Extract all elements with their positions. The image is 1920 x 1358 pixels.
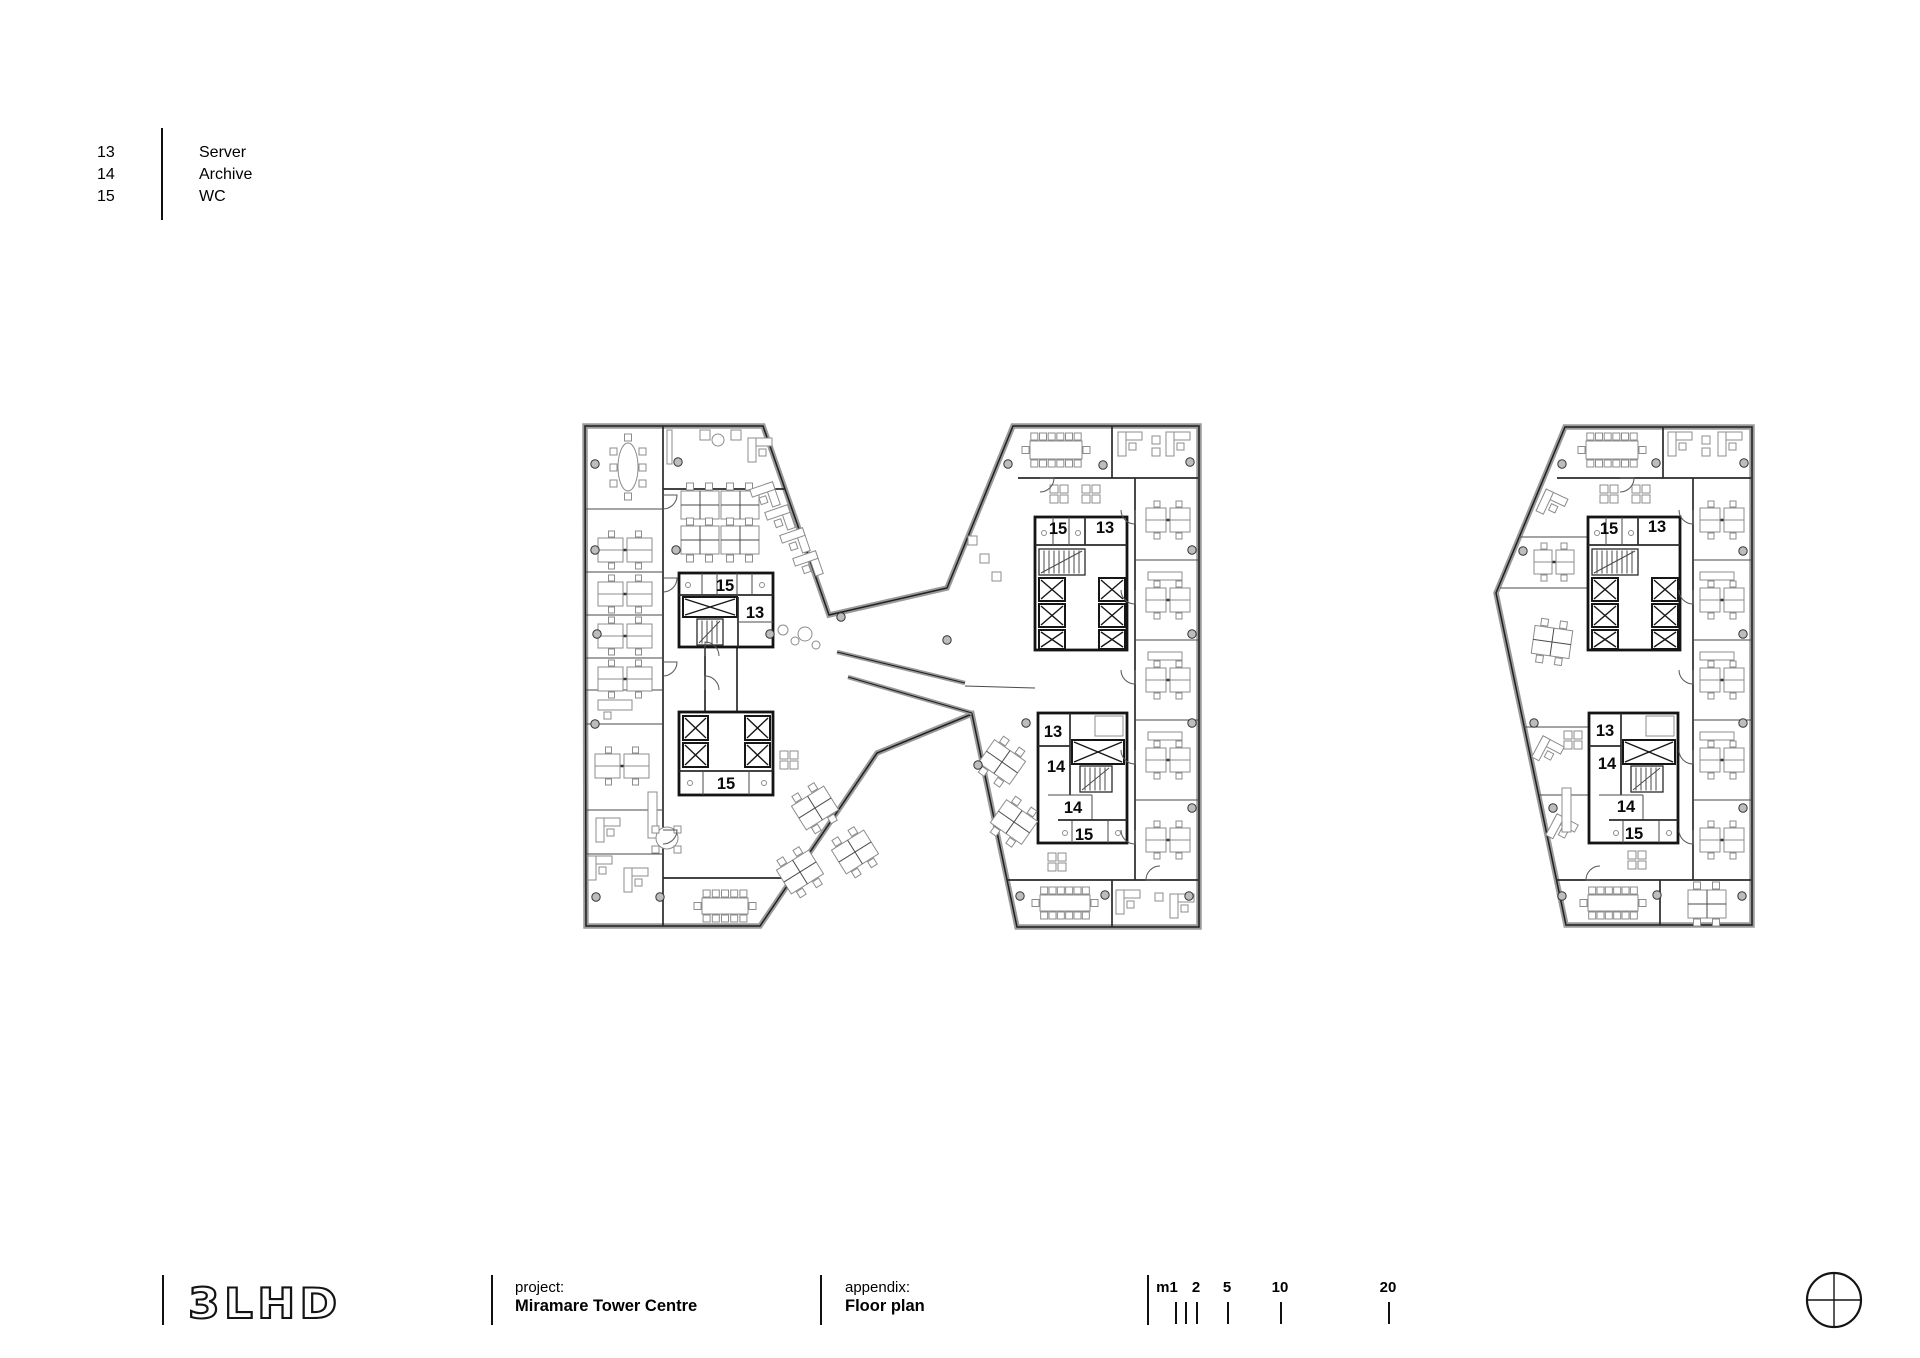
printer-box bbox=[790, 751, 798, 759]
staircase bbox=[1039, 549, 1085, 575]
elevator-shaft bbox=[1039, 630, 1065, 649]
company-logo: 3LHD bbox=[186, 1282, 376, 1328]
chair bbox=[1622, 433, 1629, 440]
service-room bbox=[1646, 716, 1674, 736]
chair bbox=[635, 879, 642, 886]
chair bbox=[609, 531, 615, 537]
printer-box bbox=[1048, 863, 1056, 871]
printer-box bbox=[1082, 495, 1090, 503]
furniture-rect bbox=[731, 430, 741, 440]
printer-box bbox=[1628, 861, 1636, 869]
room-label: 13 bbox=[1044, 723, 1062, 741]
chair bbox=[706, 555, 713, 562]
furniture-rect bbox=[1170, 748, 1190, 760]
printer-box bbox=[1632, 485, 1640, 493]
chair bbox=[1630, 912, 1637, 919]
chair bbox=[1560, 621, 1568, 629]
project-value: Miramare Tower Centre bbox=[515, 1297, 697, 1316]
chair bbox=[1074, 912, 1081, 919]
furniture-rect bbox=[1146, 748, 1166, 760]
titleblock-divider-2 bbox=[491, 1275, 493, 1325]
furniture-rect bbox=[1700, 680, 1720, 692]
column bbox=[766, 630, 774, 638]
furniture-rect bbox=[1724, 520, 1744, 532]
chair bbox=[1049, 887, 1056, 894]
furniture-rect bbox=[1170, 508, 1190, 520]
printer-box bbox=[1638, 861, 1646, 869]
furniture-rect bbox=[1702, 448, 1710, 456]
chair bbox=[633, 779, 639, 785]
chair bbox=[1031, 433, 1038, 440]
furniture-rect bbox=[1700, 588, 1720, 600]
chair bbox=[609, 692, 615, 698]
chair bbox=[1630, 433, 1637, 440]
chair bbox=[1614, 912, 1621, 919]
chair bbox=[1605, 912, 1612, 919]
chair bbox=[1176, 821, 1182, 827]
furniture-rect bbox=[1170, 600, 1190, 612]
printer-box bbox=[1082, 485, 1090, 493]
chair bbox=[740, 915, 747, 922]
chair bbox=[1176, 853, 1182, 859]
chair bbox=[1589, 912, 1596, 919]
furniture-rect bbox=[598, 636, 623, 648]
chair bbox=[636, 575, 642, 581]
chair bbox=[1622, 887, 1629, 894]
chair bbox=[1176, 533, 1182, 539]
elevator-shaft bbox=[1072, 740, 1124, 764]
chair bbox=[1057, 912, 1064, 919]
chair bbox=[607, 829, 614, 836]
furniture-rect bbox=[1724, 588, 1744, 600]
chair bbox=[1708, 581, 1714, 587]
furniture-rect bbox=[1700, 652, 1734, 660]
chair bbox=[652, 846, 659, 853]
column bbox=[591, 546, 599, 554]
chair bbox=[1587, 433, 1594, 440]
desk-cluster bbox=[827, 823, 883, 880]
chair bbox=[1176, 773, 1182, 779]
chair bbox=[1057, 433, 1064, 440]
furniture-rect bbox=[1700, 732, 1734, 740]
furniture-rect bbox=[627, 582, 652, 594]
chair bbox=[1154, 613, 1160, 619]
column bbox=[591, 720, 599, 728]
chair bbox=[1713, 919, 1720, 926]
chair bbox=[774, 519, 783, 528]
chair bbox=[1176, 661, 1182, 667]
elevator-shaft bbox=[1623, 740, 1675, 764]
chair bbox=[1708, 853, 1714, 859]
chair bbox=[1730, 661, 1736, 667]
scale-tick bbox=[1196, 1302, 1198, 1324]
chair bbox=[610, 464, 617, 471]
wc-fixture bbox=[1614, 831, 1619, 836]
furniture-rect bbox=[1148, 652, 1182, 660]
chair bbox=[599, 867, 606, 874]
chair bbox=[1730, 773, 1736, 779]
elevator-shaft bbox=[1592, 604, 1618, 627]
lounge-table bbox=[712, 434, 724, 446]
chair bbox=[1713, 882, 1720, 889]
furniture-rect bbox=[1724, 680, 1744, 692]
furniture-rect bbox=[1148, 572, 1182, 580]
room-label: 15 bbox=[716, 577, 734, 595]
staircase bbox=[697, 619, 723, 645]
furniture-rect bbox=[588, 856, 596, 880]
furniture-rect bbox=[748, 438, 756, 462]
column bbox=[672, 546, 680, 554]
furniture-rect bbox=[595, 754, 620, 766]
furniture-rect bbox=[1118, 432, 1126, 456]
column bbox=[1188, 546, 1196, 554]
wc-fixture bbox=[1042, 531, 1047, 536]
chair bbox=[1057, 460, 1064, 467]
scale-tick bbox=[1280, 1302, 1282, 1324]
titleblock-divider-1 bbox=[162, 1275, 164, 1325]
wc-fixture bbox=[762, 781, 767, 786]
chair bbox=[652, 826, 659, 833]
chair bbox=[1708, 693, 1714, 699]
elevator-shaft bbox=[1039, 578, 1065, 601]
chair bbox=[687, 518, 694, 525]
titleblock-divider-3 bbox=[820, 1275, 822, 1325]
chair bbox=[703, 890, 710, 897]
chair bbox=[694, 903, 701, 910]
furniture-rect bbox=[627, 538, 652, 550]
furniture-rect bbox=[700, 430, 710, 440]
furniture-rect bbox=[1166, 432, 1174, 456]
furniture-rect bbox=[598, 700, 632, 710]
elevator-shaft bbox=[1099, 604, 1125, 627]
printer-box bbox=[1092, 495, 1100, 503]
column bbox=[1185, 892, 1193, 900]
chair bbox=[759, 496, 768, 505]
chair bbox=[722, 890, 729, 897]
furniture-rect bbox=[1586, 441, 1638, 459]
staircase bbox=[1592, 549, 1638, 575]
printer-box bbox=[780, 751, 788, 759]
printer-box bbox=[1050, 495, 1058, 503]
chair bbox=[606, 779, 612, 785]
chair bbox=[1154, 581, 1160, 587]
chair bbox=[722, 915, 729, 922]
chair bbox=[1604, 460, 1611, 467]
elevator-shaft bbox=[745, 743, 770, 767]
appendix-label: appendix: bbox=[845, 1279, 910, 1296]
chair bbox=[1630, 887, 1637, 894]
chair bbox=[1554, 658, 1562, 666]
chair bbox=[1176, 613, 1182, 619]
furniture-rect bbox=[1724, 748, 1744, 760]
scale-label: 2 bbox=[1192, 1279, 1200, 1296]
printer-box bbox=[1610, 485, 1618, 493]
chair bbox=[1154, 501, 1160, 507]
chair bbox=[1597, 887, 1604, 894]
column bbox=[592, 893, 600, 901]
chair bbox=[625, 493, 632, 500]
elevator-shaft bbox=[1592, 630, 1618, 649]
chair bbox=[1730, 821, 1736, 827]
chair bbox=[1129, 443, 1136, 450]
furniture-rect bbox=[1700, 748, 1720, 760]
furniture-rect bbox=[992, 572, 1001, 581]
column bbox=[1004, 460, 1012, 468]
titleblock-divider-4 bbox=[1147, 1275, 1149, 1325]
staircase bbox=[1080, 766, 1112, 792]
chair bbox=[1040, 460, 1047, 467]
chair bbox=[1066, 433, 1073, 440]
furniture-rect bbox=[1170, 588, 1190, 600]
chair bbox=[1048, 460, 1055, 467]
column bbox=[1558, 892, 1566, 900]
column bbox=[1188, 630, 1196, 638]
room-label: 13 bbox=[746, 604, 764, 622]
floor-plans-drawing: 151315151313141415151313141415 bbox=[0, 0, 1920, 1358]
furniture-rect bbox=[1146, 760, 1166, 772]
chair bbox=[1730, 741, 1736, 747]
scale-tick bbox=[1175, 1302, 1177, 1324]
furniture-rect bbox=[598, 538, 623, 550]
chair bbox=[674, 846, 681, 853]
furniture-rect bbox=[1170, 828, 1190, 840]
chair bbox=[1083, 447, 1090, 454]
scale-tick bbox=[1388, 1302, 1390, 1324]
furniture-rect bbox=[1148, 732, 1182, 740]
wc-fixture bbox=[688, 781, 693, 786]
chair bbox=[759, 449, 766, 456]
chair bbox=[1541, 543, 1547, 549]
staircase bbox=[1631, 766, 1663, 792]
chair bbox=[1082, 887, 1089, 894]
furniture-rect bbox=[968, 536, 977, 545]
wc-fixture bbox=[760, 583, 765, 588]
chair bbox=[1041, 887, 1048, 894]
wc-fixture bbox=[686, 583, 691, 588]
scale-label: 20 bbox=[1380, 1279, 1397, 1296]
column bbox=[1652, 459, 1660, 467]
column bbox=[1739, 719, 1747, 727]
furniture-rect bbox=[1718, 432, 1726, 456]
chair bbox=[1032, 900, 1039, 907]
furniture-rect bbox=[627, 679, 652, 691]
wc-fixture bbox=[1629, 531, 1634, 536]
chair bbox=[712, 915, 719, 922]
chair bbox=[1679, 443, 1686, 450]
printer-box bbox=[1600, 485, 1608, 493]
column bbox=[1022, 719, 1030, 727]
chair bbox=[1708, 533, 1714, 539]
chair bbox=[1154, 773, 1160, 779]
chair bbox=[1613, 433, 1620, 440]
chair bbox=[1561, 575, 1567, 581]
column bbox=[591, 460, 599, 468]
furniture-rect bbox=[1155, 893, 1163, 901]
chair bbox=[1074, 433, 1081, 440]
furniture-rect bbox=[702, 898, 748, 914]
furniture-rect bbox=[1170, 668, 1190, 680]
furniture-rect bbox=[598, 667, 623, 679]
furniture-rect bbox=[627, 550, 652, 562]
chair bbox=[746, 555, 753, 562]
chair bbox=[636, 531, 642, 537]
furniture-rect bbox=[1588, 895, 1638, 911]
furniture-rect bbox=[1700, 572, 1734, 580]
chair bbox=[1596, 460, 1603, 467]
appendix-value: Floor plan bbox=[845, 1297, 925, 1316]
printer-box bbox=[1048, 853, 1056, 861]
chair bbox=[1597, 912, 1604, 919]
printer-box bbox=[1058, 863, 1066, 871]
chair bbox=[1604, 433, 1611, 440]
elevator-shaft bbox=[1652, 630, 1678, 649]
wc-fixture bbox=[1076, 531, 1081, 536]
chair bbox=[1057, 887, 1064, 894]
printer-box bbox=[780, 761, 788, 769]
room-label: 15 bbox=[1075, 826, 1093, 844]
furniture-rect bbox=[1556, 550, 1574, 562]
furniture-rect bbox=[598, 594, 623, 606]
chair bbox=[1154, 693, 1160, 699]
chair bbox=[1049, 912, 1056, 919]
furniture-rect bbox=[1700, 520, 1720, 532]
furniture-rect bbox=[598, 582, 623, 594]
furniture-rect bbox=[1116, 890, 1124, 914]
column bbox=[1549, 804, 1557, 812]
chair bbox=[636, 617, 642, 623]
chair bbox=[1127, 901, 1134, 908]
furniture-rect bbox=[1146, 508, 1166, 520]
printer-box bbox=[1058, 853, 1066, 861]
chair bbox=[1176, 693, 1182, 699]
printer-box bbox=[1574, 731, 1582, 739]
chair bbox=[1154, 741, 1160, 747]
chair bbox=[727, 483, 734, 490]
chair bbox=[687, 483, 694, 490]
column bbox=[1016, 892, 1024, 900]
furniture-rect bbox=[1700, 840, 1720, 852]
chair bbox=[609, 617, 615, 623]
chair bbox=[1074, 460, 1081, 467]
room-label: 14 bbox=[1617, 798, 1636, 816]
chair bbox=[1048, 433, 1055, 440]
chair bbox=[1176, 581, 1182, 587]
furniture-rect bbox=[1152, 436, 1160, 444]
furniture-rect bbox=[1170, 680, 1190, 692]
chair bbox=[1022, 447, 1029, 454]
chair bbox=[1578, 447, 1585, 454]
elevator-shaft bbox=[1099, 630, 1125, 649]
chair bbox=[1730, 501, 1736, 507]
chair bbox=[1074, 887, 1081, 894]
printer-box bbox=[1642, 495, 1650, 503]
furniture-rect bbox=[598, 550, 623, 562]
room-label: 15 bbox=[1625, 825, 1643, 843]
column bbox=[943, 636, 951, 644]
column bbox=[1739, 630, 1747, 638]
furniture-rect bbox=[627, 624, 652, 636]
furniture-rect bbox=[595, 766, 620, 778]
registration-mark bbox=[1803, 1268, 1867, 1332]
furniture-rect bbox=[1724, 600, 1744, 612]
chair bbox=[789, 542, 798, 551]
chair bbox=[1622, 912, 1629, 919]
furniture-rect bbox=[1556, 562, 1574, 574]
chair bbox=[1154, 821, 1160, 827]
chair bbox=[1730, 533, 1736, 539]
chair bbox=[1630, 460, 1637, 467]
furniture-rect bbox=[624, 754, 649, 766]
furniture-rect bbox=[1534, 562, 1552, 574]
wc-fixture bbox=[1595, 531, 1600, 536]
ottoman bbox=[778, 625, 788, 635]
ottoman bbox=[812, 641, 820, 649]
chair bbox=[746, 518, 753, 525]
printer-box bbox=[1564, 731, 1572, 739]
column bbox=[656, 893, 664, 901]
furniture-rect bbox=[1700, 600, 1720, 612]
chair bbox=[639, 480, 646, 487]
chair bbox=[1066, 887, 1073, 894]
chair bbox=[687, 555, 694, 562]
chair bbox=[1066, 460, 1073, 467]
furniture-rect bbox=[1700, 828, 1720, 840]
chair bbox=[636, 660, 642, 666]
drawing-sheet: 13Server14Archive15WC 151315151313141415… bbox=[0, 0, 1920, 1358]
chair bbox=[1041, 912, 1048, 919]
printer-box bbox=[1628, 851, 1636, 859]
ottoman bbox=[791, 637, 799, 645]
chair bbox=[703, 915, 710, 922]
chair bbox=[802, 565, 811, 574]
column bbox=[1099, 461, 1107, 469]
floor-plan-right: 151313141415 bbox=[1496, 427, 1752, 926]
chair bbox=[1694, 919, 1701, 926]
chair bbox=[636, 649, 642, 655]
column bbox=[1738, 892, 1746, 900]
furniture-rect bbox=[598, 624, 623, 636]
chair bbox=[1066, 912, 1073, 919]
chair bbox=[1708, 661, 1714, 667]
chair bbox=[1730, 853, 1736, 859]
chair bbox=[610, 480, 617, 487]
column bbox=[1739, 547, 1747, 555]
column bbox=[1519, 547, 1527, 555]
chair bbox=[1589, 887, 1596, 894]
elevator-shaft bbox=[1099, 578, 1125, 601]
scale-tick bbox=[1227, 1302, 1229, 1324]
room-label: 13 bbox=[1096, 519, 1114, 537]
chair bbox=[610, 448, 617, 455]
elevator-shaft bbox=[1039, 604, 1065, 627]
chair bbox=[1605, 887, 1612, 894]
furniture-rect bbox=[1170, 894, 1178, 918]
furniture-rect bbox=[1040, 895, 1090, 911]
column bbox=[974, 761, 982, 769]
chair bbox=[606, 747, 612, 753]
chair bbox=[1154, 533, 1160, 539]
chair bbox=[749, 903, 756, 910]
furniture-rect bbox=[1146, 828, 1166, 840]
scale-label: 10 bbox=[1272, 1279, 1289, 1296]
chair bbox=[706, 518, 713, 525]
furniture-rect bbox=[627, 636, 652, 648]
chair bbox=[625, 434, 632, 441]
column bbox=[1558, 460, 1566, 468]
chair bbox=[636, 563, 642, 569]
chair bbox=[1176, 741, 1182, 747]
column bbox=[1653, 891, 1661, 899]
